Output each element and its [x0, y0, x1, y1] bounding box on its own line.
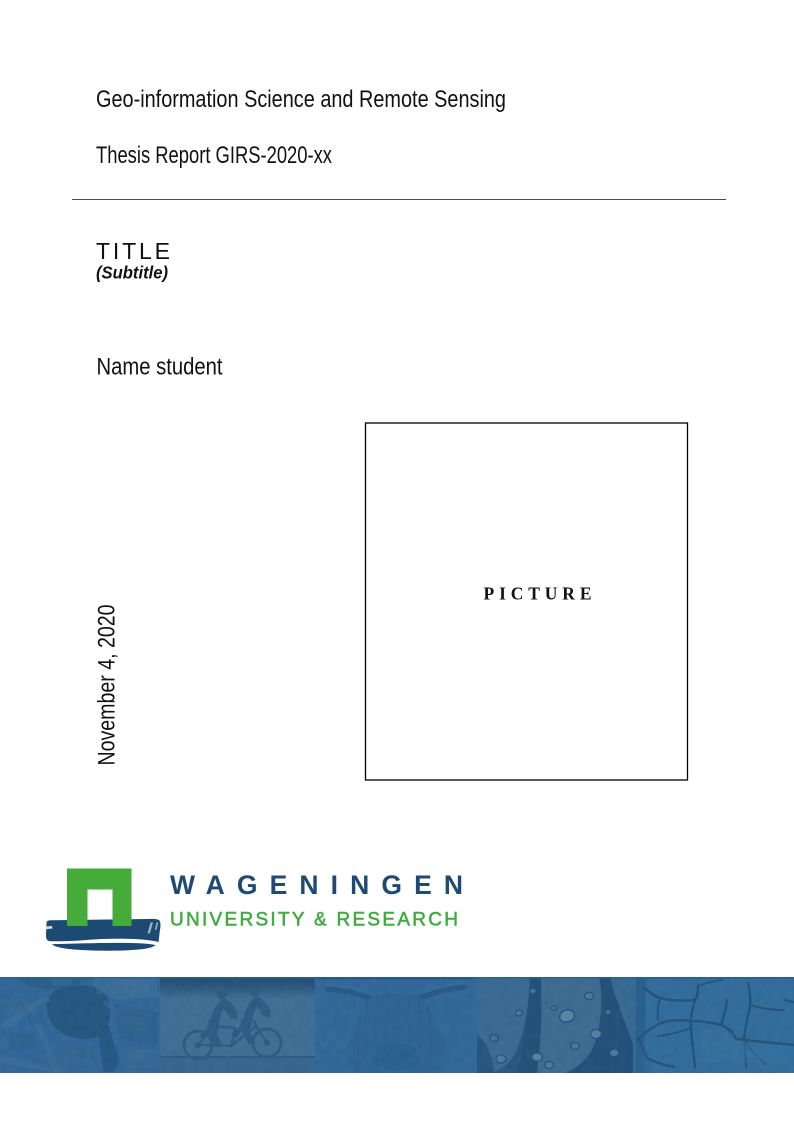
svg-text:TITLE: TITLE	[96, 238, 170, 264]
svg-text:(Subtitle): (Subtitle)	[96, 263, 168, 283]
svg-text:Name student: Name student	[97, 354, 223, 381]
svg-text:UNIVERSITY & RESEARCH: UNIVERSITY & RESEARCH	[170, 910, 458, 931]
svg-text:WAGENINGEN: WAGENINGEN	[170, 870, 463, 900]
svg-text:Geo-information Science and Re: Geo-information Science and Remote Sensi…	[96, 86, 506, 113]
svg-text:PICTURE: PICTURE	[484, 584, 592, 604]
svg-text:November 4, 2020: November 4, 2020	[94, 605, 121, 766]
svg-text:Thesis Report GIRS-2020-xx: Thesis Report GIRS-2020-xx	[96, 142, 332, 169]
